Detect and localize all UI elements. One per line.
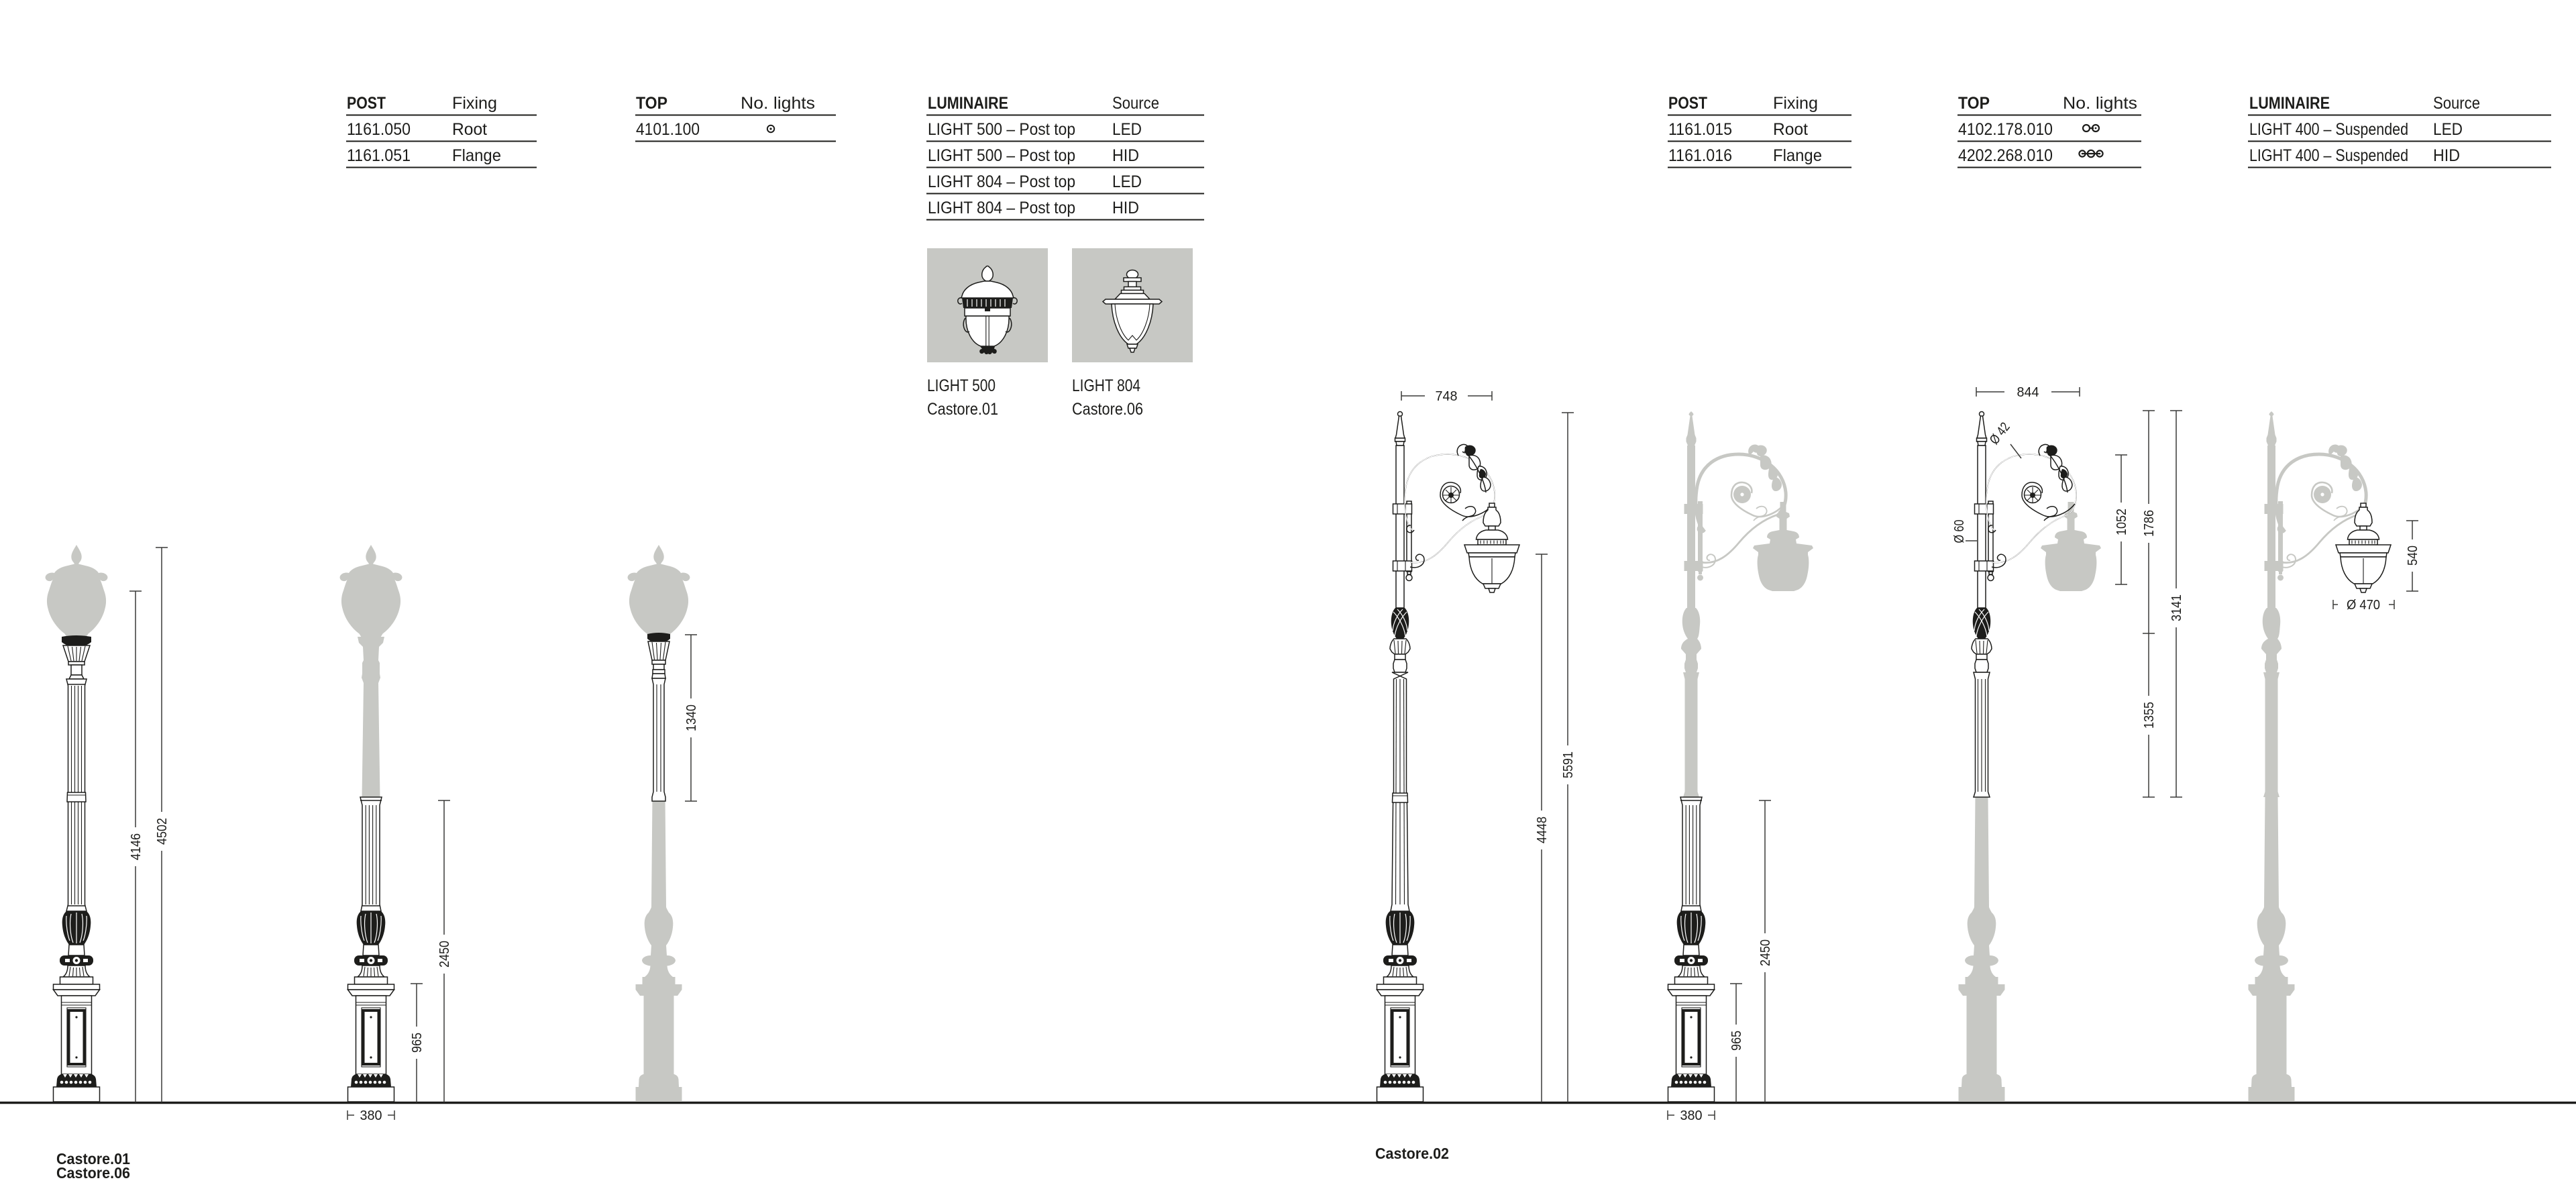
svg-text:1340: 1340 — [684, 705, 699, 731]
svg-text:Castore.06: Castore.06 — [56, 1164, 130, 1182]
svg-text:LED: LED — [1112, 120, 1142, 139]
svg-text:2450: 2450 — [437, 941, 452, 968]
svg-text:LIGHT 400 – Suspended: LIGHT 400 – Suspended — [2249, 146, 2408, 165]
svg-text:2450: 2450 — [1758, 939, 1773, 966]
svg-text:540: 540 — [2406, 545, 2420, 566]
svg-text:1052: 1052 — [2114, 509, 2129, 535]
svg-text:No. lights: No. lights — [741, 94, 815, 113]
svg-text:1355: 1355 — [2142, 702, 2157, 729]
svg-text:1161.016: 1161.016 — [1668, 146, 1732, 165]
svg-text:LED: LED — [2433, 120, 2463, 139]
svg-text:4202.268.010: 4202.268.010 — [1958, 146, 2053, 165]
svg-text:1161.050: 1161.050 — [347, 120, 411, 139]
svg-text:Flange: Flange — [452, 146, 501, 165]
svg-text:5591: 5591 — [1561, 751, 1576, 778]
svg-text:LIGHT 500: LIGHT 500 — [927, 376, 996, 395]
svg-text:4448: 4448 — [1535, 817, 1550, 843]
svg-text:1161.051: 1161.051 — [347, 146, 411, 165]
svg-text:HID: HID — [1112, 199, 1139, 217]
svg-text:LIGHT 804: LIGHT 804 — [1072, 376, 1140, 395]
svg-text:4101.100: 4101.100 — [636, 120, 700, 139]
svg-text:380: 380 — [1680, 1108, 1703, 1123]
svg-text:Castore.02: Castore.02 — [1375, 1145, 1449, 1162]
svg-text:POST: POST — [1668, 94, 1707, 113]
svg-text:POST: POST — [347, 94, 386, 113]
svg-text:Ø 60: Ø 60 — [1952, 520, 1967, 543]
svg-text:Source: Source — [1112, 94, 1159, 113]
svg-text:LIGHT 804 – Post top: LIGHT 804 – Post top — [928, 199, 1075, 217]
svg-text:4146: 4146 — [129, 833, 144, 860]
svg-text:965: 965 — [410, 1033, 425, 1053]
svg-text:TOP: TOP — [636, 94, 667, 113]
svg-text:LUMINAIRE: LUMINAIRE — [928, 94, 1008, 113]
svg-text:LIGHT 500 – Post top: LIGHT 500 – Post top — [928, 120, 1075, 139]
svg-text:1786: 1786 — [2142, 510, 2157, 537]
svg-text:Ø 470: Ø 470 — [2347, 598, 2380, 613]
svg-text:No. lights: No. lights — [2063, 94, 2137, 113]
svg-text:Fixing: Fixing — [1773, 94, 1818, 113]
svg-text:Fixing: Fixing — [452, 94, 497, 113]
svg-text:LIGHT 500 – Post top: LIGHT 500 – Post top — [928, 146, 1075, 165]
svg-text:Castore.01: Castore.01 — [927, 400, 998, 419]
svg-text:Root: Root — [452, 120, 487, 139]
svg-text:4502: 4502 — [155, 818, 170, 845]
svg-text:LIGHT 400 – Suspended: LIGHT 400 – Suspended — [2249, 120, 2408, 139]
svg-text:965: 965 — [1729, 1031, 1744, 1051]
svg-text:Source: Source — [2433, 94, 2480, 113]
svg-text:1161.015: 1161.015 — [1668, 120, 1732, 139]
svg-text:LIGHT 804 – Post top: LIGHT 804 – Post top — [928, 172, 1075, 191]
svg-text:LED: LED — [1112, 172, 1142, 191]
svg-text:Root: Root — [1773, 120, 1808, 139]
svg-text:Flange: Flange — [1773, 146, 1822, 165]
svg-text:4102.178.010: 4102.178.010 — [1958, 120, 2053, 139]
svg-text:TOP: TOP — [1958, 94, 1990, 113]
svg-text:3141: 3141 — [2169, 594, 2184, 621]
svg-text:380: 380 — [360, 1108, 382, 1123]
svg-text:HID: HID — [1112, 146, 1139, 165]
svg-text:748: 748 — [1436, 389, 1458, 404]
svg-text:844: 844 — [2017, 385, 2039, 400]
svg-text:HID: HID — [2433, 146, 2460, 165]
svg-text:LUMINAIRE: LUMINAIRE — [2249, 94, 2330, 113]
svg-text:Castore.06: Castore.06 — [1072, 400, 1143, 419]
